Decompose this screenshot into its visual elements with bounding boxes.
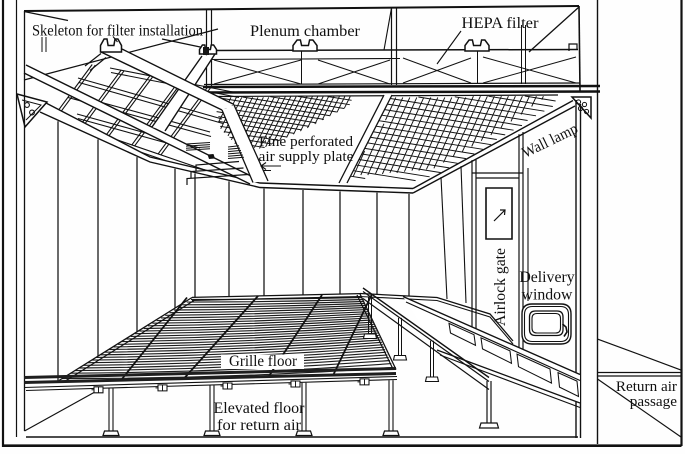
svg-text:Delivery: Delivery: [519, 269, 574, 286]
svg-text:Plenum chamber: Plenum chamber: [250, 23, 361, 40]
svg-text:Airlock gate: Airlock gate: [492, 248, 509, 326]
svg-text:Elevated floor: Elevated floor: [214, 400, 306, 417]
svg-text:Grille floor: Grille floor: [229, 353, 298, 370]
svg-text:Skeleton for filter installati: Skeleton for filter installation: [32, 22, 203, 40]
svg-text:HEPA filter: HEPA filter: [462, 15, 540, 32]
svg-text:air supply plate: air supply plate: [259, 148, 354, 165]
svg-text:window: window: [522, 287, 573, 304]
svg-text:for return air: for return air: [217, 417, 302, 434]
svg-text:passage: passage: [630, 393, 677, 410]
